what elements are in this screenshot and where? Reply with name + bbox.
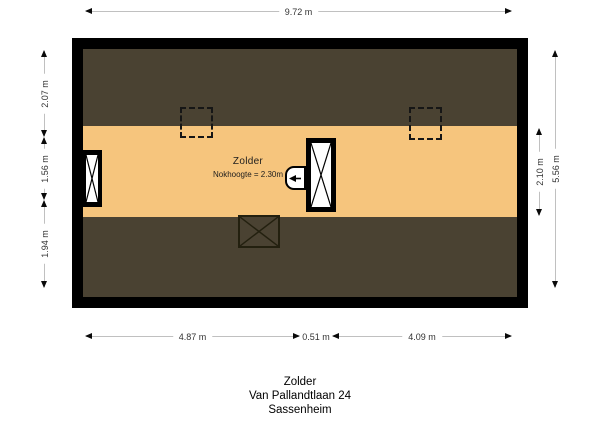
window-glazing bbox=[86, 155, 98, 202]
dimension-right-outer: 5.56 m bbox=[551, 50, 561, 288]
arrow-up-icon bbox=[41, 50, 47, 57]
dimension-label: 2.07 m bbox=[40, 74, 50, 114]
skylight-symbol-left bbox=[180, 107, 213, 138]
arrow-up-icon bbox=[41, 137, 47, 144]
window-x-icon bbox=[86, 155, 98, 202]
dimension-top-width: 9.72 m bbox=[85, 7, 512, 17]
dimension-label: 1.94 m bbox=[40, 224, 50, 264]
arrow-up-icon bbox=[536, 128, 542, 135]
dimension-right-inner: 2.10 m bbox=[535, 128, 545, 216]
roof-slope-area-top bbox=[83, 49, 517, 126]
arrow-up-icon bbox=[41, 200, 47, 207]
ridge-height-label: Nokhoogte = 2.30m bbox=[180, 170, 316, 179]
arrow-down-icon bbox=[41, 130, 47, 137]
dimension-bottom-right: 4.09 m bbox=[332, 332, 512, 342]
arrow-right-icon bbox=[505, 333, 512, 339]
title-address: Van Pallandtlaan 24 bbox=[0, 389, 600, 403]
dimension-left-lower: 1.94 m bbox=[40, 200, 50, 288]
dimension-left-middle: 1.56 m bbox=[40, 137, 50, 200]
arrow-left-icon bbox=[85, 333, 92, 339]
arrow-right-icon bbox=[505, 8, 512, 14]
dimension-label: 0.51 m bbox=[301, 332, 331, 342]
title-room: Zolder bbox=[0, 375, 600, 389]
dimension-label: 4.87 m bbox=[173, 332, 213, 342]
dimension-label: 9.72 m bbox=[279, 7, 319, 17]
floorplan-page: 9.72 m 2.07 m 1.56 m 1.94 m 2.10 m 5.56 … bbox=[0, 0, 600, 424]
room-name: Zolder bbox=[180, 156, 316, 167]
shaft-x-icon bbox=[240, 217, 278, 246]
arrow-down-icon bbox=[41, 281, 47, 288]
roof-slope-area-bottom bbox=[83, 217, 517, 297]
dimension-label: 1.56 m bbox=[40, 149, 50, 189]
arrow-right-icon bbox=[293, 333, 300, 339]
arrow-left-icon bbox=[332, 333, 339, 339]
skylight-symbol-right bbox=[409, 107, 442, 140]
dimension-label: 5.56 m bbox=[551, 149, 561, 189]
window-symbol bbox=[82, 150, 102, 207]
dimension-bottom-left: 4.87 m bbox=[85, 332, 300, 342]
arrow-left-icon bbox=[85, 8, 92, 14]
arrow-down-icon bbox=[552, 281, 558, 288]
arrow-down-icon bbox=[536, 209, 542, 216]
title-city: Sassenheim bbox=[0, 403, 600, 417]
dimension-bottom-middle: 0.51 m bbox=[300, 332, 332, 342]
dimension-label: 4.09 m bbox=[402, 332, 442, 342]
arrow-down-icon bbox=[41, 193, 47, 200]
room-label: Zolder Nokhoogte = 2.30m bbox=[180, 156, 316, 179]
shaft-symbol bbox=[238, 215, 280, 248]
dimension-left-upper: 2.07 m bbox=[40, 50, 50, 137]
arrow-up-icon bbox=[552, 50, 558, 57]
dimension-label: 2.10 m bbox=[535, 152, 545, 192]
title-block: Zolder Van Pallandtlaan 24 Sassenheim bbox=[0, 375, 600, 417]
